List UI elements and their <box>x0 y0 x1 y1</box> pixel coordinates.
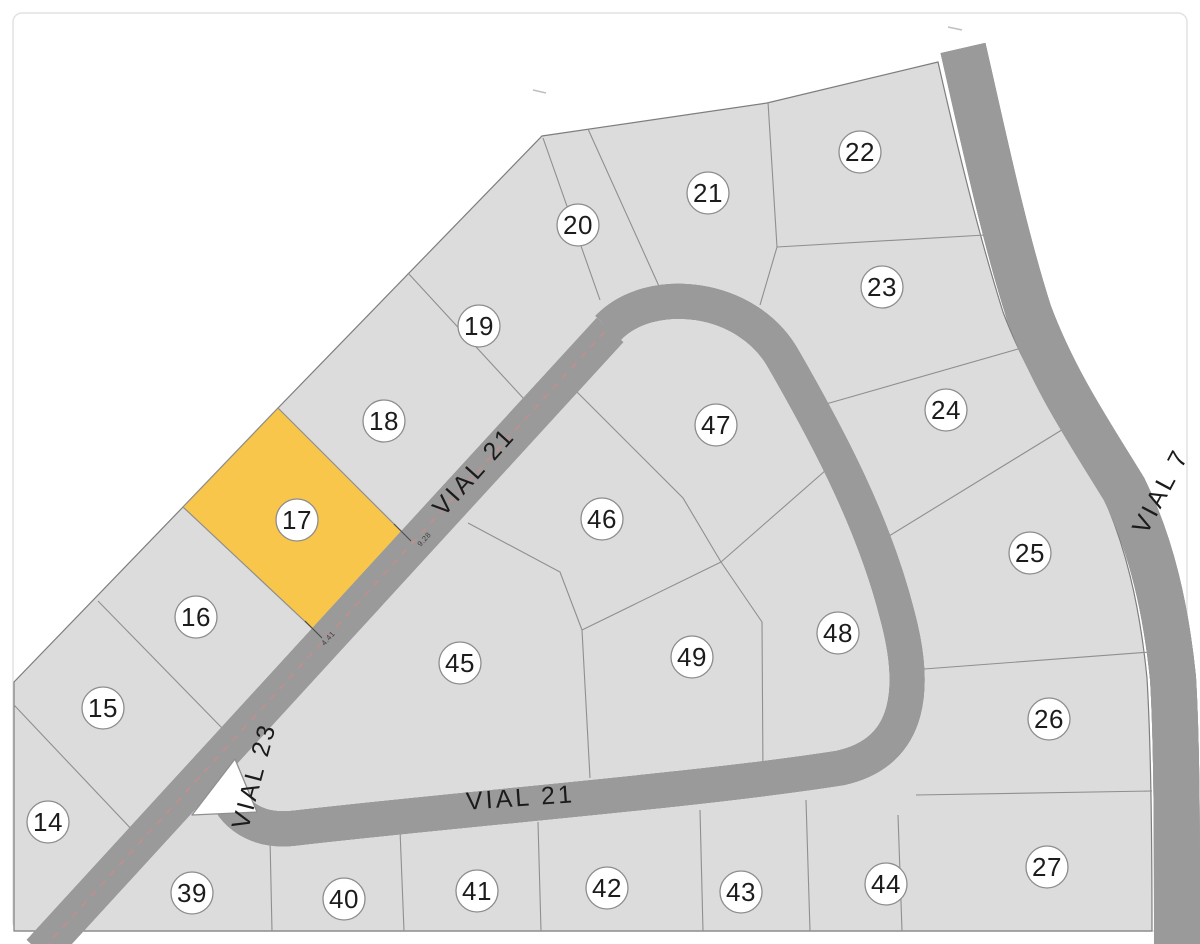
parcel-43-label[interactable]: 43 <box>720 871 762 913</box>
parcel-24-label[interactable]: 24 <box>925 389 967 431</box>
svg-text:14: 14 <box>33 807 63 837</box>
parcel-map: 9.284.41 VIAL 21VIAL 21VIAL 23VIAL 7 141… <box>0 0 1200 944</box>
parcel-49-label[interactable]: 49 <box>671 636 713 678</box>
svg-text:25: 25 <box>1015 538 1045 568</box>
svg-text:16: 16 <box>181 602 211 632</box>
svg-text:48: 48 <box>823 618 853 648</box>
parcel-39-label[interactable]: 39 <box>171 872 213 914</box>
parcel-16-label[interactable]: 16 <box>175 596 217 638</box>
parcel-21-label[interactable]: 21 <box>687 172 729 214</box>
svg-text:20: 20 <box>563 210 593 240</box>
svg-text:47: 47 <box>701 410 731 440</box>
parcel-46-label[interactable]: 46 <box>581 498 623 540</box>
parcel-17-label[interactable]: 17 <box>276 499 318 541</box>
svg-text:44: 44 <box>871 869 901 899</box>
parcel-45-label[interactable]: 45 <box>439 642 481 684</box>
svg-text:46: 46 <box>587 504 617 534</box>
parcel-47-label[interactable]: 47 <box>695 404 737 446</box>
svg-text:24: 24 <box>931 395 961 425</box>
parcel-41-label[interactable]: 41 <box>456 870 498 912</box>
parcel-40-label[interactable]: 40 <box>323 878 365 920</box>
svg-text:19: 19 <box>464 311 494 341</box>
parcel-18-label[interactable]: 18 <box>363 400 405 442</box>
parcel-22-label[interactable]: 22 <box>839 131 881 173</box>
parcel-25-label[interactable]: 25 <box>1009 532 1051 574</box>
parcel-26-label[interactable]: 26 <box>1028 698 1070 740</box>
svg-text:17: 17 <box>282 505 312 535</box>
svg-text:21: 21 <box>693 178 723 208</box>
parcel-27-label[interactable]: 27 <box>1026 846 1068 888</box>
parcel-48-label[interactable]: 48 <box>817 612 859 654</box>
parcel-20-label[interactable]: 20 <box>557 204 599 246</box>
svg-text:43: 43 <box>726 877 756 907</box>
parcel-23-label[interactable]: 23 <box>861 266 903 308</box>
parcel-44-label[interactable]: 44 <box>865 863 907 905</box>
svg-text:15: 15 <box>88 693 118 723</box>
svg-text:49: 49 <box>677 642 707 672</box>
svg-text:26: 26 <box>1034 704 1064 734</box>
parcel-14-label[interactable]: 14 <box>27 801 69 843</box>
svg-text:39: 39 <box>177 878 207 908</box>
svg-text:27: 27 <box>1032 852 1062 882</box>
parcel-map-page: 9.284.41 VIAL 21VIAL 21VIAL 23VIAL 7 141… <box>0 0 1200 944</box>
svg-text:18: 18 <box>369 406 399 436</box>
svg-text:22: 22 <box>845 137 875 167</box>
parcel-19-label[interactable]: 19 <box>458 305 500 347</box>
svg-text:40: 40 <box>329 884 359 914</box>
parcel-42-label[interactable]: 42 <box>586 867 628 909</box>
svg-text:23: 23 <box>867 272 897 302</box>
svg-text:41: 41 <box>462 876 492 906</box>
svg-text:45: 45 <box>445 648 475 678</box>
svg-text:42: 42 <box>592 873 622 903</box>
parcel-15-label[interactable]: 15 <box>82 687 124 729</box>
